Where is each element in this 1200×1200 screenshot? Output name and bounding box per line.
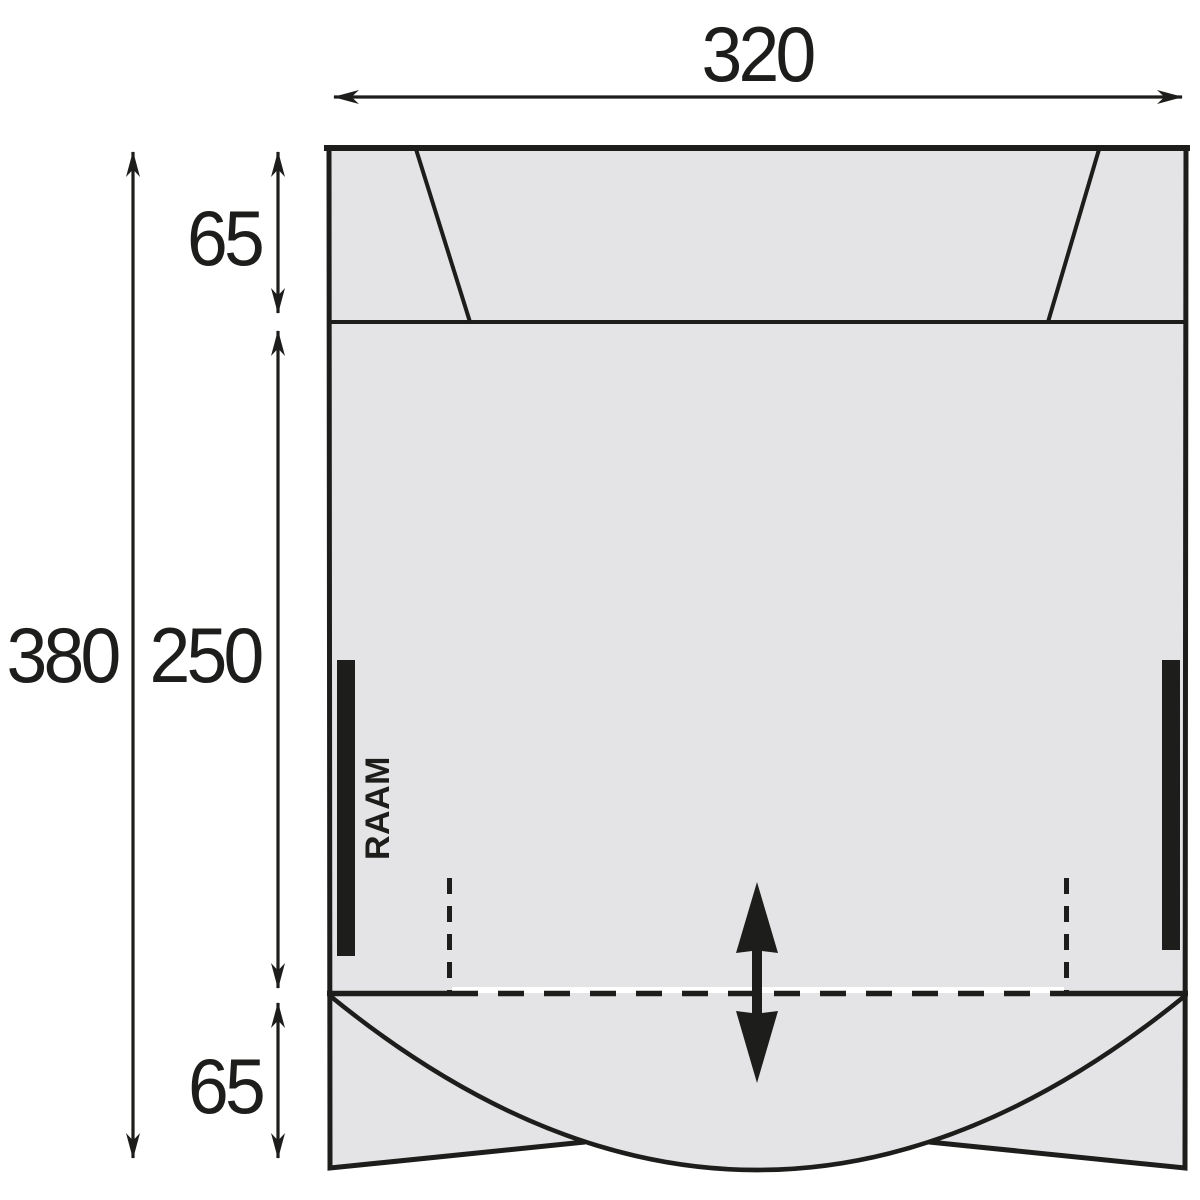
total-height-dimension-label: 380 <box>6 616 117 694</box>
awning-floorplan-diagram: { "diagram": { "labels": { "width": "320… <box>0 0 1200 1200</box>
window-bar-left <box>337 660 355 956</box>
roof-depth-dimension-label: 65 <box>187 199 261 277</box>
main-depth-dimension-label: 250 <box>149 616 260 694</box>
window-label: RAAM <box>361 756 395 860</box>
width-dimension-label: 320 <box>701 15 812 93</box>
front-depth-dimension-label: 65 <box>188 1047 262 1125</box>
window-bar-right <box>1162 660 1180 950</box>
floorplan-canvas <box>0 0 1200 1200</box>
